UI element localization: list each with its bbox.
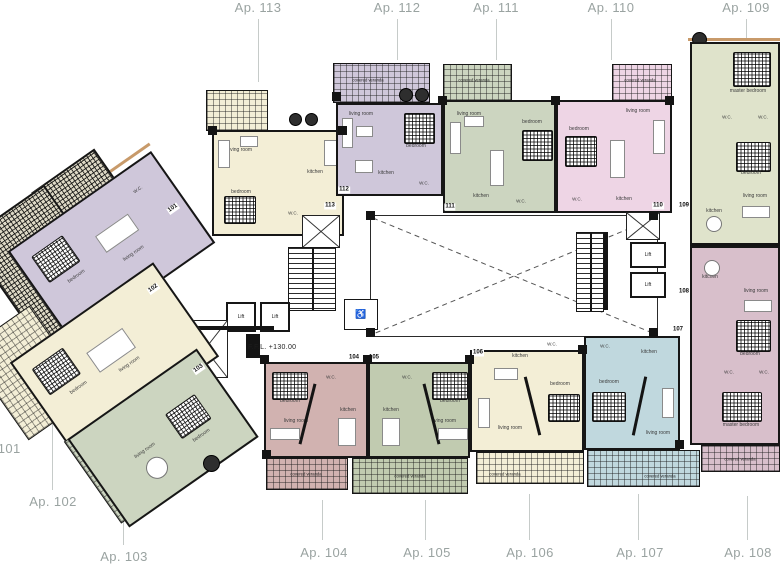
room-label-bedroom: bedroom [522, 119, 542, 125]
unit-tag-110: 110 [652, 203, 664, 210]
veranda-label-ap110: covered veranda [624, 78, 655, 83]
furniture [240, 136, 258, 147]
furniture [494, 368, 518, 380]
furniture [338, 418, 356, 446]
perimeter-label-ap105: Ap. 105 [403, 545, 451, 560]
furniture [95, 214, 139, 253]
bed-icon [432, 372, 468, 400]
veranda-ap113 [206, 90, 268, 131]
furniture [356, 126, 373, 137]
bed-icon [592, 392, 626, 422]
room-label-master-bedroom: master bedroom [730, 88, 766, 94]
perimeter-label-ap108: Ap. 108 [724, 545, 772, 560]
room-label-bedroom: bedroom [67, 268, 87, 284]
bed-icon [736, 320, 771, 352]
room-label-kitchen: kitchen [378, 170, 394, 176]
room-label-wc: W.C. [516, 199, 526, 204]
pier [665, 96, 674, 105]
stairs [576, 232, 604, 312]
room-label-wc: W.C. [724, 370, 734, 375]
pier [363, 355, 372, 364]
perimeter-label-ap113: Ap. 113 [235, 0, 282, 15]
room-label-wc: W.C. [722, 115, 732, 120]
furniture [450, 122, 461, 154]
room-label-wc: W.C. [402, 375, 412, 380]
room-label-living: living room [646, 430, 670, 436]
pier [438, 96, 447, 105]
furniture [662, 388, 674, 418]
bed-icon [522, 130, 553, 161]
furniture [218, 140, 230, 168]
pier [260, 355, 269, 364]
ac-unit-icon [305, 113, 318, 126]
room-label-kitchen: kitchen [383, 407, 399, 413]
bed-icon [722, 392, 762, 422]
perimeter-label-ap102: Ap. 102 [29, 494, 77, 509]
ac-unit-icon [203, 455, 220, 472]
dining-table [706, 216, 722, 232]
unit-tag-113: 113 [324, 203, 336, 210]
leader-line-ap110 [611, 19, 612, 60]
pier [332, 92, 341, 101]
lift-box: Lift [630, 272, 666, 298]
room-label-wc: W.C. [326, 375, 336, 380]
unit-tag-108: 108 [678, 289, 690, 296]
leader-line-ap104 [322, 500, 323, 540]
perimeter-label-ap111: Ap. 111 [473, 0, 519, 15]
veranda-label-ap106: covered veranda [489, 472, 520, 477]
room-label-wc: W.C. [132, 185, 143, 195]
perimeter-label-ap107: Ap. 107 [616, 545, 664, 560]
room-label-living: living room [744, 288, 768, 294]
perimeter-label-ap106: Ap. 106 [506, 545, 554, 560]
pier [675, 440, 684, 449]
void-cross-lines [371, 216, 657, 336]
leader-line-ap109 [746, 19, 747, 39]
perimeter-label-ap112: Ap. 112 [374, 0, 421, 15]
room-label-wc: W.C. [419, 181, 429, 186]
room-label-living: living room [498, 425, 522, 431]
room-label-bedroom: bedroom [550, 381, 570, 387]
unit-tag-109: 109 [678, 203, 690, 210]
room-label-bedroom: bedroom [440, 398, 460, 404]
veranda-label-ap105: covered veranda [394, 474, 425, 479]
room-label-living: living room [349, 111, 373, 117]
room-label-bedroom: bedroom [599, 379, 619, 385]
unit-tag-103: 103 [192, 363, 206, 376]
room-label-living: living room [228, 147, 252, 153]
furniture [270, 428, 300, 440]
room-label-kitchen: kitchen [616, 196, 632, 202]
lift-label: Lift [645, 252, 652, 258]
room-label-kitchen: kitchen [641, 349, 657, 355]
room-label-bedroom: bedroom [741, 170, 761, 176]
veranda-label-ap108: covered veranda [724, 457, 755, 462]
veranda-label-ap104: covered veranda [290, 472, 321, 477]
pier [338, 126, 347, 135]
bed-icon [565, 136, 597, 167]
bed-icon [272, 372, 308, 400]
veranda-ap111 [443, 64, 512, 101]
ac-unit-icon [415, 88, 429, 102]
pier [649, 211, 658, 220]
pier [465, 355, 474, 364]
leader-line-ap107 [638, 494, 639, 540]
room-label-living: living room [122, 244, 145, 263]
ffl-label: F.F.L. +130.00 [248, 344, 296, 351]
unit-tag-104: 104 [348, 355, 360, 362]
core-wall [604, 232, 608, 310]
unit-tag-107: 107 [672, 327, 684, 334]
room-label-kitchen: kitchen [512, 353, 528, 359]
furniture [490, 150, 504, 186]
furniture [478, 398, 490, 428]
pier [366, 328, 375, 337]
room-label-kitchen: kitchen [706, 208, 722, 214]
room-label-bedroom: bedroom [69, 380, 89, 396]
furniture [742, 206, 770, 218]
pier [578, 345, 587, 354]
room-label-living: living room [626, 108, 650, 114]
leader-line-ap108 [747, 496, 748, 540]
bed-icon [736, 142, 771, 172]
room-label-bedroom: bedroom [280, 398, 300, 404]
room-label-kitchen: kitchen [473, 193, 489, 199]
dining-table [704, 260, 720, 276]
furniture [610, 140, 625, 178]
lift-label: Lift [238, 314, 245, 320]
lift-label: Lift [272, 314, 279, 320]
unit-tag-112: 112 [338, 187, 350, 194]
accessible-wc: ♿ [344, 299, 378, 330]
room-label-wc: W.C. [600, 344, 610, 349]
void-lightwell [370, 215, 658, 337]
wheelchair-icon: ♿ [355, 309, 366, 320]
room-label-wc: W.C. [759, 370, 769, 375]
room-label-wc: W.C. [547, 342, 557, 347]
lift-label: Lift [645, 282, 652, 288]
bed-icon [548, 394, 580, 422]
room-label-kitchen: kitchen [340, 407, 356, 413]
room-label-living: living room [743, 193, 767, 199]
veranda-ap106 [476, 452, 584, 484]
bed-icon [404, 113, 435, 144]
unit-tag-111: 111 [444, 204, 455, 211]
ac-unit-icon [399, 88, 413, 102]
veranda-label-ap111: covered veranda [458, 78, 489, 83]
room-label-bedroom: bedroom [740, 351, 760, 357]
furniture [382, 418, 400, 446]
leader-line-ap106 [529, 494, 530, 540]
furniture [653, 120, 665, 154]
leader-line-ap111 [496, 19, 497, 60]
ac-unit-icon [289, 113, 302, 126]
bed-icon [224, 196, 256, 224]
floor-plan-canvas: Ap. 101 Ap. 102 Ap. 103 Ap. 104 Ap. 105 … [0, 0, 780, 575]
unit-tag-101: 101 [166, 202, 180, 215]
furniture [744, 300, 772, 312]
veranda-ap110 [612, 64, 672, 101]
bed-icon [733, 52, 771, 87]
shaft-x [302, 215, 340, 248]
room-label-kitchen: kitchen [307, 169, 323, 175]
dining-table [142, 453, 173, 484]
furniture [438, 428, 468, 440]
veranda-label-ap107: covered veranda [644, 474, 675, 479]
room-label-wc: W.C. [572, 197, 582, 202]
perimeter-label-ap104: Ap. 104 [300, 545, 348, 560]
leader-line-ap112 [397, 19, 398, 60]
perimeter-label-ap103: Ap. 103 [100, 549, 148, 564]
leader-line-ap102 [52, 418, 53, 490]
veranda-label-ap112: covered veranda [352, 78, 383, 83]
perimeter-label-ap101: Ap. 101 [0, 441, 21, 456]
stairs [288, 247, 336, 311]
room-label-master-bedroom: master bedroom [723, 422, 759, 428]
room-label-bedroom: bedroom [569, 126, 589, 132]
room-label-bedroom: bedroom [231, 189, 251, 195]
furniture [355, 160, 373, 173]
pier [366, 211, 375, 220]
leader-line-ap113 [258, 19, 259, 82]
unit-tag-102: 102 [147, 283, 161, 296]
pier [649, 328, 658, 337]
pier [262, 450, 271, 459]
veranda-ap107 [587, 450, 700, 487]
perimeter-label-ap110: Ap. 110 [588, 0, 635, 15]
pier [208, 126, 217, 135]
room-label-wc: W.C. [288, 211, 298, 216]
perimeter-label-ap109: Ap. 109 [722, 0, 770, 15]
furniture [464, 116, 484, 127]
lift-box: Lift [630, 242, 666, 268]
pier [551, 96, 560, 105]
room-label-wc: W.C. [758, 115, 768, 120]
leader-line-ap105 [425, 500, 426, 540]
